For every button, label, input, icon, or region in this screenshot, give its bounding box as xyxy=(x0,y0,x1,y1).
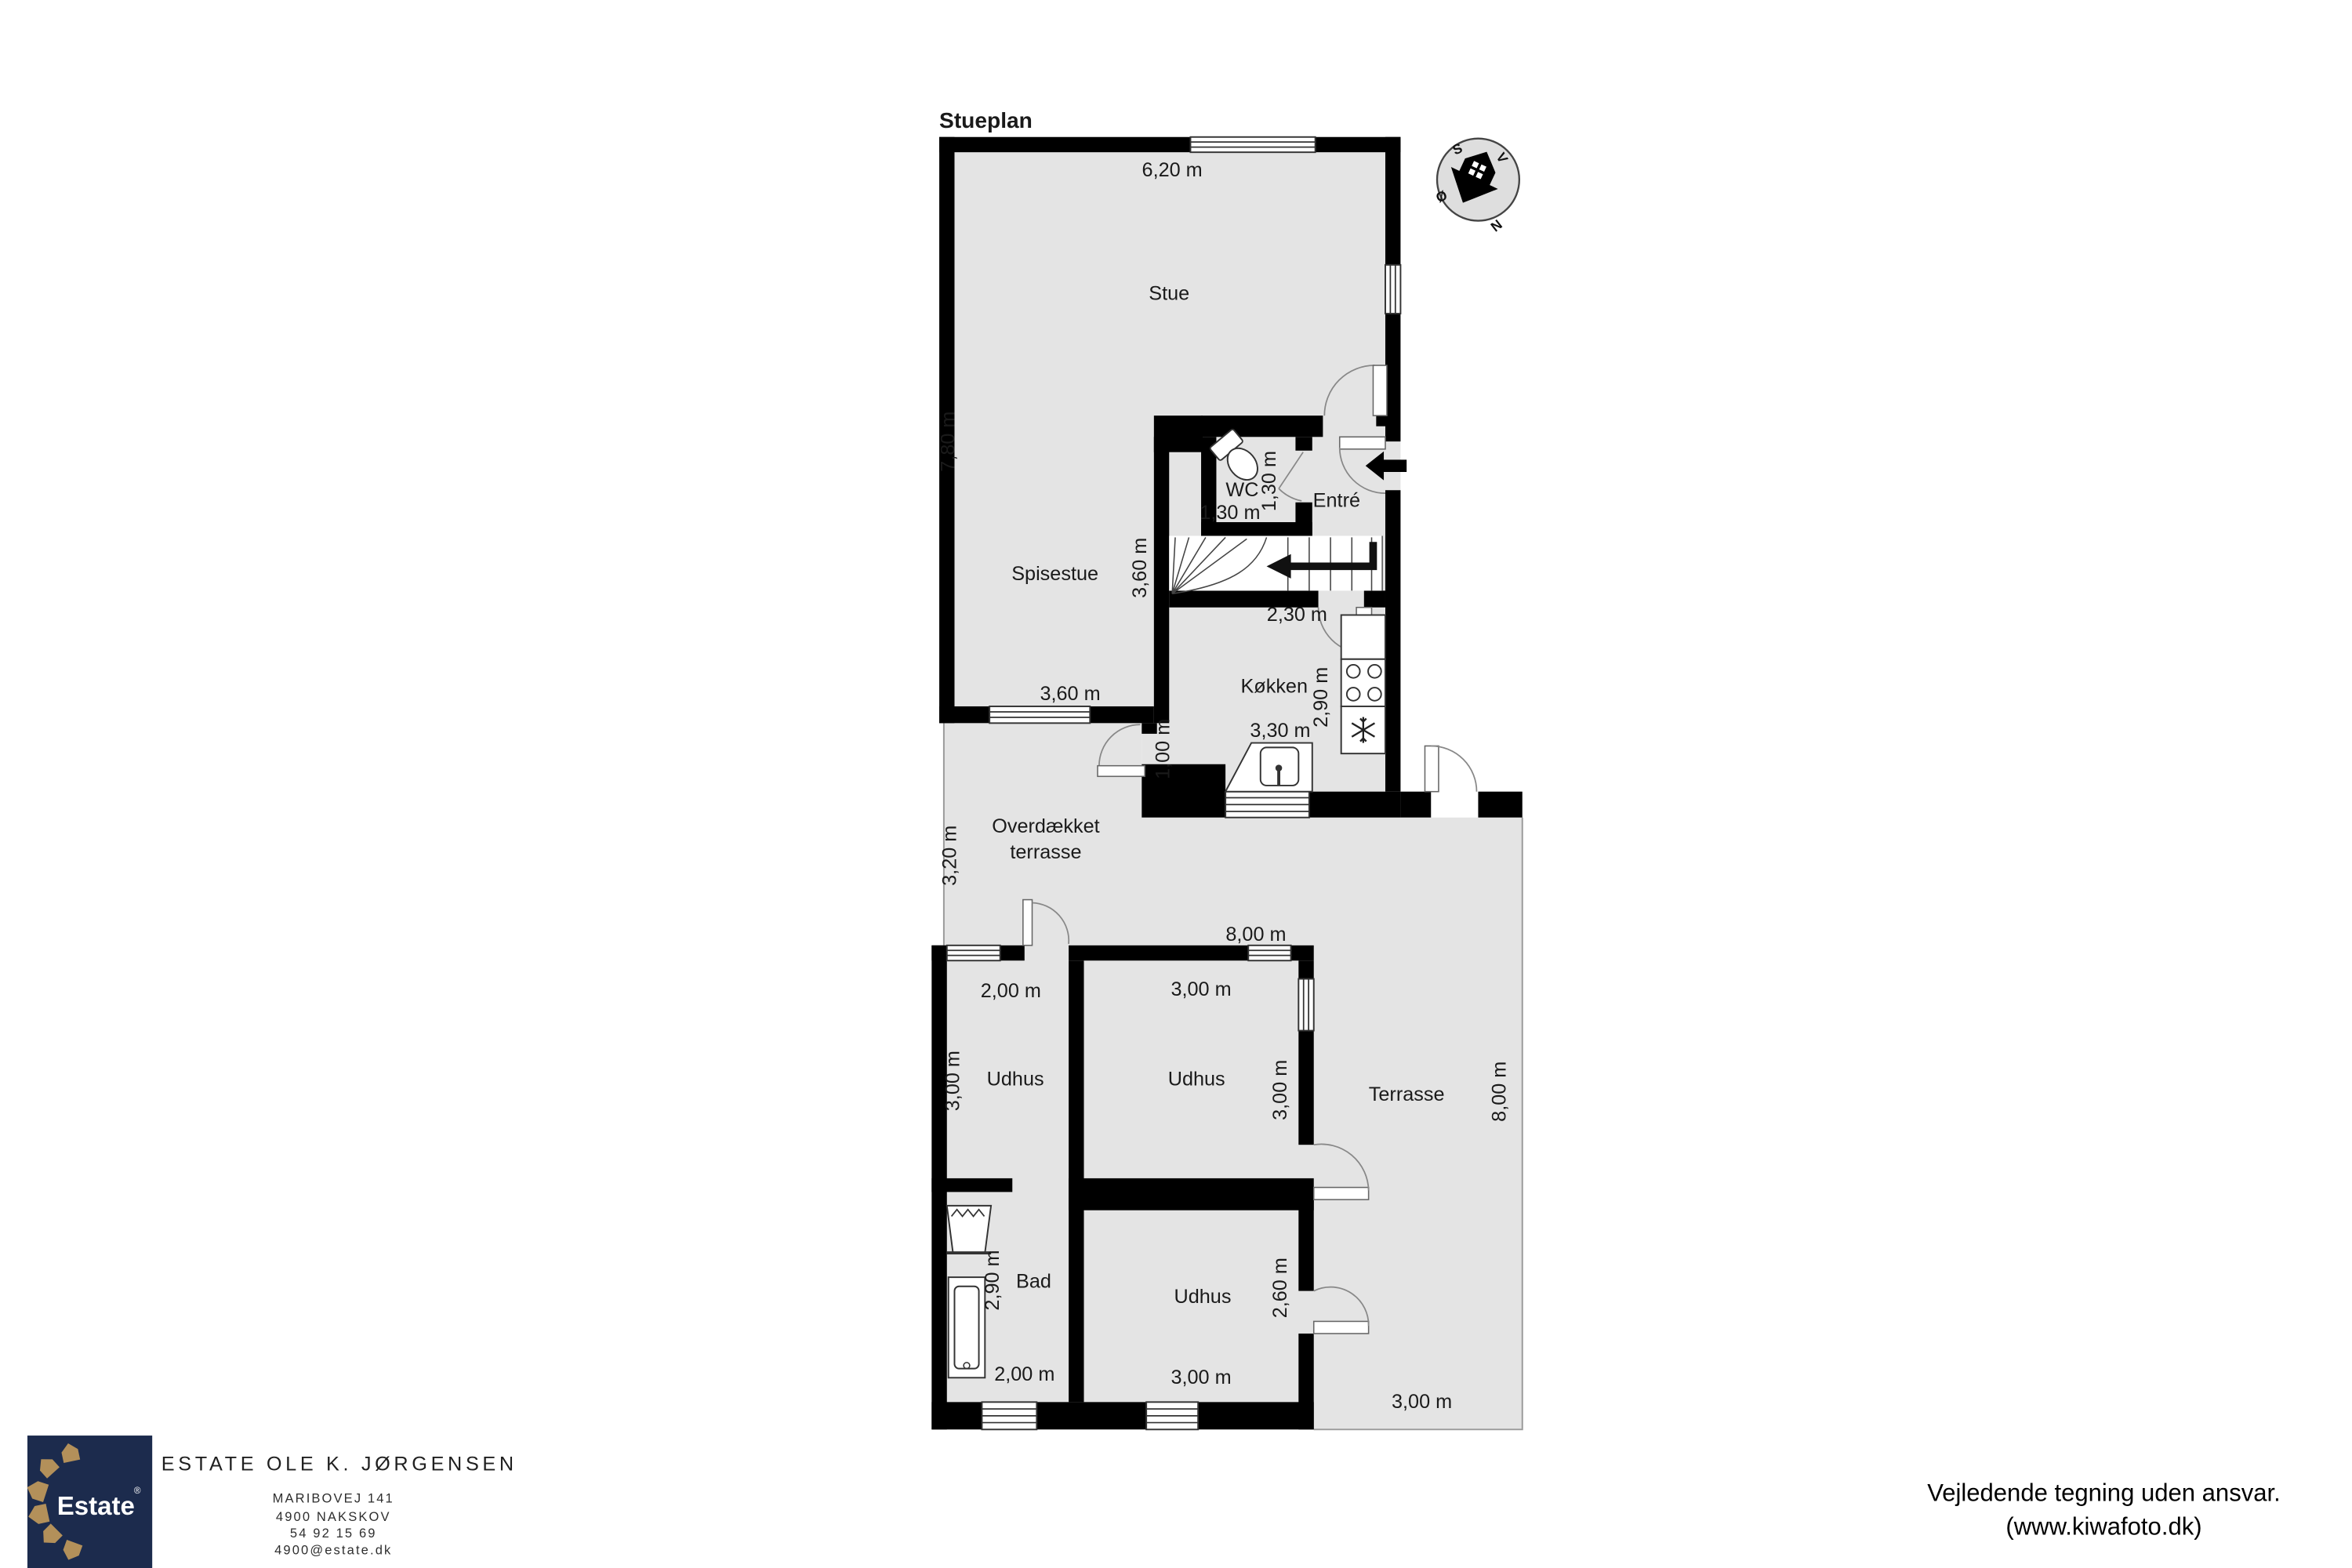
dim-spisestue-width: 3,60 m xyxy=(1040,683,1100,705)
dim-wc-width: 1,30 m xyxy=(1200,502,1260,524)
dim-outbuilding-total-width: 8,00 m xyxy=(1225,924,1286,946)
dim-outbuilding2-width: 3,00 m xyxy=(1171,978,1231,1000)
label-bath: Bad xyxy=(1016,1271,1051,1293)
plan-title: Stueplan xyxy=(939,108,1033,132)
compass-icon: S V N Ø xyxy=(1433,139,1519,235)
stove-icon xyxy=(1341,659,1385,706)
company-email: 4900@estate.dk xyxy=(274,1544,392,1558)
window-stue-right xyxy=(1385,265,1400,314)
label-outbuilding1: Udhus xyxy=(987,1068,1044,1090)
window-outbuilding3-bottom xyxy=(1146,1402,1198,1429)
company-name: ESTATE OLE K. JØRGENSEN xyxy=(162,1454,517,1475)
label-kitchen: Køkken xyxy=(1240,675,1308,697)
dim-outbuilding3-width: 3,00 m xyxy=(1171,1367,1231,1388)
label-entre: Entré xyxy=(1313,490,1360,512)
window-spisestue xyxy=(989,706,1090,723)
dim-terrace-width: 3,00 m xyxy=(1392,1391,1452,1413)
disclaimer-line2: (www.kiwafoto.dk) xyxy=(2005,1512,2201,1540)
dim-bath-width: 2,00 m xyxy=(994,1363,1054,1385)
estate-logo-text: Estate xyxy=(57,1491,135,1520)
fridge-icon xyxy=(1341,706,1385,753)
floor-plan-drawing: S V N Ø Stueplan 6,20 m Stue 7,80 m WC 1… xyxy=(0,0,2352,1568)
dim-kitchen-depth: 2,90 m xyxy=(1310,667,1332,728)
window-kitchen xyxy=(1225,792,1309,818)
dim-outbuilding3-depth: 2,60 m xyxy=(1269,1258,1291,1318)
dim-passage: 1,00 m xyxy=(1152,719,1174,779)
label-outbuilding3: Udhus xyxy=(1174,1286,1232,1308)
label-covered-terrace-line1: Overdækket xyxy=(992,815,1099,837)
label-covered-terrace-line2: terrasse xyxy=(1010,841,1081,863)
label-outbuilding2: Udhus xyxy=(1168,1068,1225,1090)
dim-stue-width: 6,20 m xyxy=(1142,159,1203,181)
dim-outbuilding1-width: 2,00 m xyxy=(981,980,1041,1002)
dim-outbuilding1-depth: 3,00 m xyxy=(942,1051,964,1111)
dim-spisestue-depth: 3,60 m xyxy=(1129,538,1151,598)
label-stue: Stue xyxy=(1149,283,1189,305)
disclaimer-line1: Vejledende tegning uden ansvar. xyxy=(1927,1479,2281,1507)
door-terrace-northeast xyxy=(1425,746,1476,791)
estate-logo-registered: ® xyxy=(134,1486,141,1496)
label-spisestue: Spisestue xyxy=(1011,563,1098,585)
window-outbuilding2-top xyxy=(1248,946,1290,960)
label-wc: WC xyxy=(1225,479,1258,501)
dim-stue-depth: 7,80 m xyxy=(937,412,959,472)
dim-kitchen-width: 3,30 m xyxy=(1250,720,1310,742)
window-stue-top xyxy=(1190,137,1315,152)
window-outbuilding2-right xyxy=(1298,979,1313,1031)
company-address-line1: MARIBOVEJ 141 xyxy=(273,1492,394,1506)
dim-terrace-depth: 8,00 m xyxy=(1488,1062,1510,1122)
dim-outbuilding2-depth: 3,00 m xyxy=(1269,1060,1291,1120)
dim-bath-depth: 2,90 m xyxy=(982,1250,1004,1310)
dim-covered-terrace-depth: 3,20 m xyxy=(938,826,960,886)
dim-stair-width: 2,30 m xyxy=(1267,604,1327,626)
kitchen-counter-icon xyxy=(1341,615,1385,659)
company-phone: 54 92 15 69 xyxy=(290,1526,377,1541)
bath-sink-icon xyxy=(947,1206,991,1253)
shower-icon xyxy=(949,1277,985,1377)
stairs-icon xyxy=(1169,535,1382,593)
compass-north: N xyxy=(1488,216,1505,235)
estate-logo: Estate ® xyxy=(24,1436,152,1568)
company-address-line2: 4900 NAKSKOV xyxy=(276,1510,391,1524)
window-outbuilding1-top xyxy=(947,946,1000,960)
label-terrace: Terrasse xyxy=(1369,1083,1445,1105)
dim-wc-depth: 1,30 m xyxy=(1258,451,1280,511)
window-bath-bottom xyxy=(982,1402,1036,1429)
